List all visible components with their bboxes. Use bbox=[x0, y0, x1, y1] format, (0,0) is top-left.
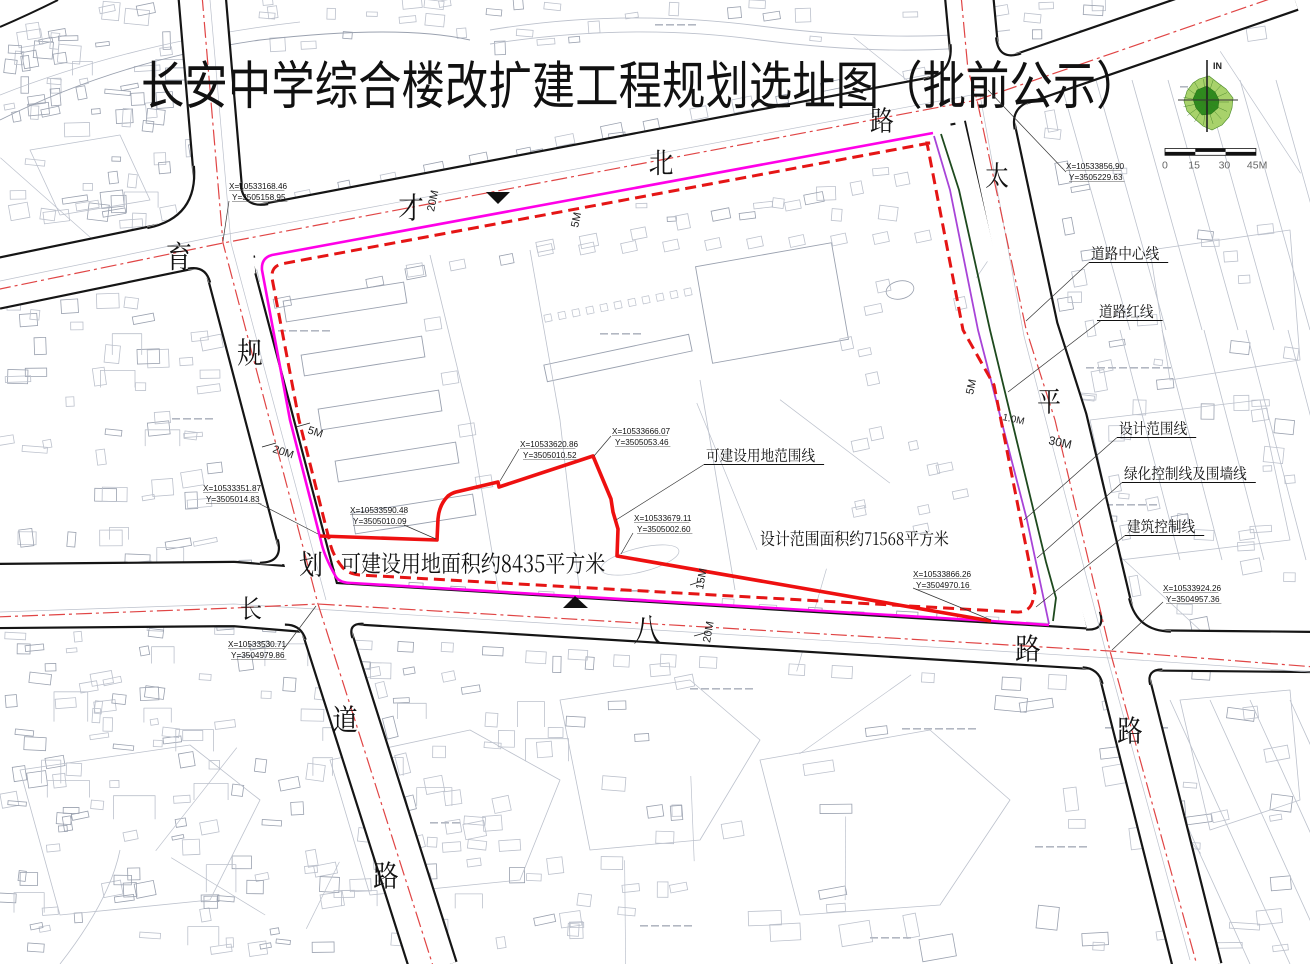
svg-text:X=10533679.11: X=10533679.11 bbox=[634, 514, 692, 523]
svg-text:0: 0 bbox=[1162, 160, 1168, 172]
svg-text:IN: IN bbox=[1213, 61, 1222, 71]
svg-text:X=10533351.87: X=10533351.87 bbox=[203, 484, 261, 493]
svg-text:Y=3505158.95: Y=3505158.95 bbox=[232, 193, 286, 202]
svg-text:X=10533856.90: X=10533856.90 bbox=[1066, 162, 1124, 171]
svg-text:Y=3505010.52: Y=3505010.52 bbox=[523, 451, 577, 460]
svg-text:Y=3505002.60: Y=3505002.60 bbox=[637, 525, 691, 534]
svg-text:X=10533168.46: X=10533168.46 bbox=[229, 182, 287, 191]
svg-text:15: 15 bbox=[1188, 160, 1200, 172]
svg-text:45M: 45M bbox=[1247, 160, 1267, 172]
svg-text:X=10533620.86: X=10533620.86 bbox=[520, 440, 578, 449]
svg-text:Y=3505229.63: Y=3505229.63 bbox=[1069, 173, 1123, 182]
svg-text:30: 30 bbox=[1219, 160, 1231, 172]
svg-text:Y=3505053.46: Y=3505053.46 bbox=[615, 438, 669, 447]
svg-text:Y=3505010.09: Y=3505010.09 bbox=[353, 517, 407, 526]
svg-text:Y=3504957.36: Y=3504957.36 bbox=[1166, 595, 1220, 604]
svg-text:X=10533866.26: X=10533866.26 bbox=[913, 570, 971, 579]
svg-text:Y=3505014.83: Y=3505014.83 bbox=[206, 495, 260, 504]
svg-text:Y=3504970.16: Y=3504970.16 bbox=[916, 581, 970, 590]
svg-text:X=10533924.26: X=10533924.26 bbox=[1163, 584, 1221, 593]
svg-text:X=10533666.07: X=10533666.07 bbox=[612, 427, 670, 436]
svg-text:Y=3504979.86: Y=3504979.86 bbox=[231, 651, 285, 660]
svg-text:X=10533530.71: X=10533530.71 bbox=[228, 640, 286, 649]
svg-text:X=10533590.48: X=10533590.48 bbox=[350, 506, 408, 515]
